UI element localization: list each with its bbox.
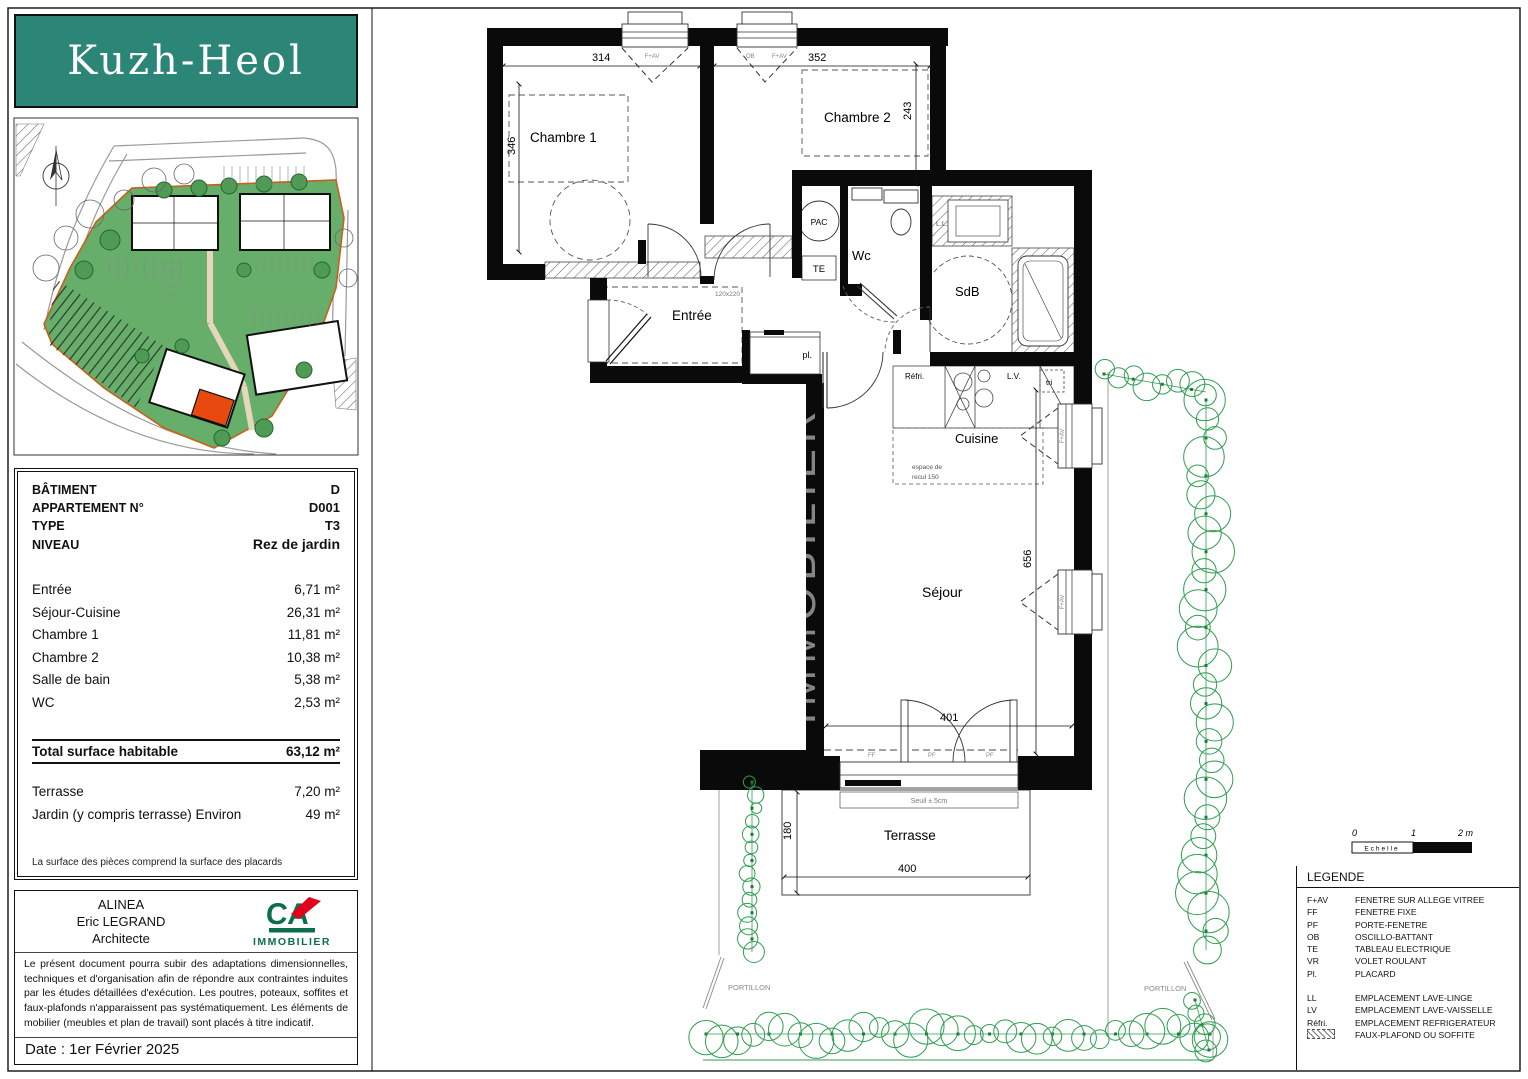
total-label: Total surface habitable <box>32 744 178 759</box>
legend-row: VRVOLET ROULANT <box>1307 955 1519 967</box>
table-row: Chambre 111,81 m² <box>32 627 340 650</box>
legend-key: F+AV <box>1307 894 1355 906</box>
scale-label: Echelle <box>1364 846 1399 853</box>
ca-logo-icon: CA <box>261 895 323 935</box>
row-label: Séjour-Cuisine <box>32 605 121 620</box>
window-top-2: OB F+AV <box>737 12 797 82</box>
disclaimer-text: Le présent document pourra subir des ada… <box>15 953 357 1037</box>
table-row: Salle de bain5,38 m² <box>32 672 340 695</box>
legend-row: OBOSCILLO-BATTANT <box>1307 931 1519 943</box>
site-plan <box>14 118 358 455</box>
architect-firm: ALINEA <box>98 896 144 913</box>
dim-656: 656 <box>1022 550 1034 568</box>
apartment-id-rows: BÂTIMENTDAPPARTEMENT N°D001TYPET3NIVEAUR… <box>32 482 340 554</box>
total-area-row: Total surface habitable 63,12 m² <box>32 739 340 764</box>
row-value: 26,31 m² <box>287 605 340 620</box>
legend-desc: EMPLACEMENT REFRIGERATEUR <box>1355 1017 1496 1029</box>
architect-panel: ALINEA Eric LEGRAND Architecte CA IMMOBI… <box>14 890 358 1065</box>
pac-te: PAC TE <box>799 201 839 280</box>
legend-desc: TABLEAU ELECTRIQUE <box>1355 943 1451 955</box>
legend-key: VR <box>1307 955 1355 967</box>
table-row: Jardin (y compris terrasse) Environ49 m² <box>32 807 340 830</box>
dim-180: 180 <box>782 822 794 840</box>
legend-key: Réfri. <box>1307 1017 1355 1029</box>
row-label: Salle de bain <box>32 672 110 687</box>
architect-role: Architecte <box>92 930 150 947</box>
dim-400: 400 <box>898 863 916 875</box>
fav-label-2: F+AV <box>772 54 787 60</box>
window-right-1: F+AV <box>1020 404 1102 468</box>
row-label: Chambre 1 <box>32 627 99 642</box>
room-area-rows: Entrée6,71 m²Séjour-Cuisine26,31 m²Chamb… <box>32 582 340 717</box>
sdb-label: SdB <box>955 284 980 299</box>
entrance-door <box>588 300 651 364</box>
legend-key: FF <box>1307 906 1355 918</box>
legend-row: LLEMPLACEMENT LAVE-LINGE <box>1307 992 1519 1004</box>
fav-label-4: F+AV <box>1060 595 1066 610</box>
scale-1: 1 <box>1411 828 1416 838</box>
legend-key: LL <box>1307 992 1355 1004</box>
portillon-left-label: PORTILLON <box>728 983 770 992</box>
table-row: Terrasse7,20 m² <box>32 784 340 807</box>
legend-panel: LEGENDE F+AVFENETRE SUR ALLEGE VITREEFFF… <box>1296 866 1519 1070</box>
legend-desc: PLACARD <box>1355 968 1396 980</box>
project-title: Kuzh-Heol <box>67 38 305 84</box>
row-label: BÂTIMENT <box>32 483 97 497</box>
bathroom-fixtures: L.L. <box>924 200 1068 346</box>
row-value: D001 <box>309 500 340 515</box>
dim-314: 314 <box>592 52 610 64</box>
legend-row: Pl.PLACARD <box>1307 968 1519 980</box>
row-label: TYPE <box>32 519 65 533</box>
floor-plan-sheet: 400 180 Terrasse L.L. PAC TE <box>0 0 1528 1079</box>
legend-title: LEGENDE <box>1297 866 1519 887</box>
legend-desc: EMPLACEMENT LAVE-LINGE <box>1355 992 1473 1004</box>
garden-hedges <box>689 359 1235 1061</box>
legend-desc: FENETRE SUR ALLEGE VITREE <box>1355 894 1484 906</box>
sdb-turning-circle <box>924 256 1012 344</box>
window-top-1: F+AV <box>622 12 688 82</box>
surface-note: La surface des pièces comprend la surfac… <box>32 857 282 868</box>
door-size-label: 120x220 <box>715 291 740 298</box>
chambre2-label: Chambre 2 <box>824 110 891 125</box>
scale-2m: 2 m <box>1457 828 1474 838</box>
scale-bar: 0 1 2 m Echelle <box>1352 828 1474 853</box>
legend-key <box>1307 1029 1355 1042</box>
legend-desc: OSCILLO-BATTANT <box>1355 931 1433 943</box>
row-value: 49 m² <box>305 807 340 822</box>
sejour-label: Séjour <box>922 584 963 600</box>
architect-name: Eric LEGRAND <box>77 913 166 930</box>
tri-label: tri <box>1046 378 1053 387</box>
table-row: TYPET3 <box>32 518 340 536</box>
apartment-info-panel: BÂTIMENTDAPPARTEMENT N°D001TYPET3NIVEAUR… <box>14 468 358 880</box>
sejour-french-doors: FF PF PF Seuil ± 5cm <box>824 700 1018 808</box>
row-value: 10,38 m² <box>287 650 340 665</box>
row-label: Entrée <box>32 582 72 597</box>
row-label: APPARTEMENT N° <box>32 501 144 515</box>
watermark: IMMOBILIER <box>776 405 825 724</box>
ff-bottom-label: FF <box>868 753 876 759</box>
seuil-label: Seuil ± 5cm <box>911 798 948 805</box>
row-label: Jardin (y compris terrasse) Environ <box>32 807 241 822</box>
legend-row: FFFENETRE FIXE <box>1307 906 1519 918</box>
pf-bottom-label-2: PF <box>986 753 994 759</box>
placard: pl. <box>750 330 820 374</box>
te-label: TE <box>813 264 825 275</box>
dim-401: 401 <box>940 712 958 724</box>
outdoor-area-rows: Terrasse7,20 m²Jardin (y compris terrass… <box>32 784 340 829</box>
table-row: Entrée6,71 m² <box>32 582 340 605</box>
espace-recul-line1: espace de <box>912 464 942 471</box>
legend-row: LVEMPLACEMENT LAVE-VAISSELLE <box>1307 1004 1519 1016</box>
espace-recul-line2: recul 150 <box>912 474 939 481</box>
terrasse-label: Terrasse <box>884 828 936 843</box>
legend-entries: F+AVFENETRE SUR ALLEGE VITREEFFFENETRE F… <box>1297 888 1519 1042</box>
legend-row: Réfri.EMPLACEMENT REFRIGERATEUR <box>1307 1017 1519 1029</box>
wc-fixtures <box>852 188 918 235</box>
legend-desc: FENETRE FIXE <box>1355 906 1417 918</box>
project-logo: Kuzh-Heol <box>14 14 358 108</box>
chambre1-label: Chambre 1 <box>530 130 597 145</box>
ca-brand-label: IMMOBILIER <box>253 936 331 948</box>
row-value: T3 <box>325 518 340 533</box>
row-value: 2,53 m² <box>294 695 340 710</box>
legend-desc: PORTE-FENETRE <box>1355 919 1427 931</box>
total-value: 63,12 m² <box>286 744 340 759</box>
wc-label: Wc <box>852 248 871 263</box>
soffite-hatch-icon <box>1307 1029 1335 1039</box>
table-row: BÂTIMENTD <box>32 482 340 500</box>
row-label: WC <box>32 695 55 710</box>
dim-352: 352 <box>808 52 826 64</box>
window-right-2: F+AV <box>1020 570 1102 634</box>
pf-bottom-label-1: PF <box>928 753 936 759</box>
row-value: 7,20 m² <box>294 784 340 799</box>
garden-gates <box>703 957 1215 1020</box>
table-row: Séjour-Cuisine26,31 m² <box>32 605 340 628</box>
fav-label-1: F+AV <box>645 54 660 60</box>
legend-row: F+AVFENETRE SUR ALLEGE VITREE <box>1307 894 1519 906</box>
legend-key: PF <box>1307 919 1355 931</box>
pac-label: PAC <box>811 217 828 227</box>
table-row: Chambre 210,38 m² <box>32 650 340 673</box>
ca-immobilier-brand: CA IMMOBILIER <box>227 891 357 952</box>
legend-row: FAUX-PLAFOND OU SOFFITE <box>1307 1029 1519 1042</box>
row-value: D <box>331 482 340 497</box>
table-row: APPARTEMENT N°D001 <box>32 500 340 518</box>
refri-label: Réfri. <box>905 372 924 381</box>
row-value: 11,81 m² <box>288 627 340 642</box>
row-label: NIVEAU <box>32 538 79 552</box>
legend-row: TETABLEAU ELECTRIQUE <box>1307 943 1519 955</box>
row-label: Terrasse <box>32 784 84 799</box>
legend-desc: FAUX-PLAFOND OU SOFFITE <box>1355 1029 1475 1042</box>
dim-243: 243 <box>902 102 914 120</box>
legend-key: TE <box>1307 943 1355 955</box>
ob-label: OB <box>746 54 755 60</box>
portillon-right-label: PORTILLON <box>1144 984 1186 993</box>
dim-346: 346 <box>506 137 518 155</box>
scale-0: 0 <box>1352 828 1357 838</box>
table-row: NIVEAURez de jardin <box>32 536 340 554</box>
legend-key: Pl. <box>1307 968 1355 980</box>
entree-label: Entrée <box>672 308 712 323</box>
legend-row: PFPORTE-FENETRE <box>1307 919 1519 931</box>
legend-key: LV <box>1307 1004 1355 1016</box>
ll-label: L.L. <box>936 221 948 228</box>
cuisine-label: Cuisine <box>955 431 998 446</box>
row-label: Chambre 2 <box>32 650 99 665</box>
plan-date: Date : 1er Février 2025 <box>15 1037 357 1064</box>
row-value: 5,38 m² <box>294 672 340 687</box>
legend-desc: EMPLACEMENT LAVE-VAISSELLE <box>1355 1004 1493 1016</box>
pl-label: pl. <box>802 350 812 360</box>
fav-label-3: F+AV <box>1060 429 1066 444</box>
row-value: Rez de jardin <box>253 536 340 552</box>
lv-label: L.V. <box>1007 372 1021 381</box>
legend-key: OB <box>1307 931 1355 943</box>
row-value: 6,71 m² <box>294 582 340 597</box>
table-row: WC2,53 m² <box>32 695 340 718</box>
legend-desc: VOLET ROULANT <box>1355 955 1426 967</box>
architect-header: ALINEA Eric LEGRAND Architecte CA IMMOBI… <box>15 891 357 953</box>
